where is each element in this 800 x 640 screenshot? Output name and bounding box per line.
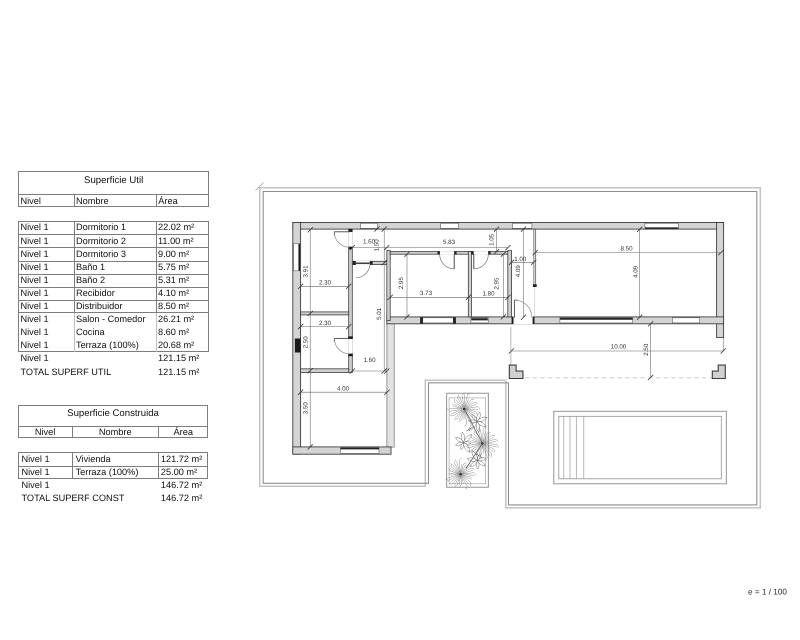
svg-text:3.91: 3.91: [303, 265, 310, 278]
svg-text:4.00: 4.00: [337, 386, 350, 393]
svg-text:2.50: 2.50: [643, 343, 650, 356]
svg-text:1.50: 1.50: [374, 239, 381, 252]
svg-text:1.05: 1.05: [489, 233, 496, 246]
svg-text:4.09: 4.09: [515, 265, 522, 278]
svg-text:e = 1 / 100: e = 1 / 100: [748, 587, 787, 596]
svg-text:3.73: 3.73: [420, 290, 433, 297]
svg-text:1.60: 1.60: [363, 357, 376, 364]
svg-text:2.30: 2.30: [319, 280, 332, 287]
svg-text:8.50: 8.50: [620, 245, 633, 252]
svg-text:5.01: 5.01: [376, 307, 383, 320]
svg-text:2.50: 2.50: [303, 336, 310, 349]
svg-text:10.00: 10.00: [611, 343, 627, 350]
svg-text:2.95: 2.95: [398, 277, 405, 290]
svg-text:1.00: 1.00: [514, 256, 527, 263]
svg-text:2.30: 2.30: [319, 320, 332, 327]
svg-text:4.09: 4.09: [632, 265, 639, 278]
svg-text:1.80: 1.80: [482, 290, 495, 297]
svg-text:3.50: 3.50: [303, 402, 310, 415]
svg-text:5.83: 5.83: [443, 239, 456, 246]
svg-text:2.95: 2.95: [494, 277, 501, 290]
